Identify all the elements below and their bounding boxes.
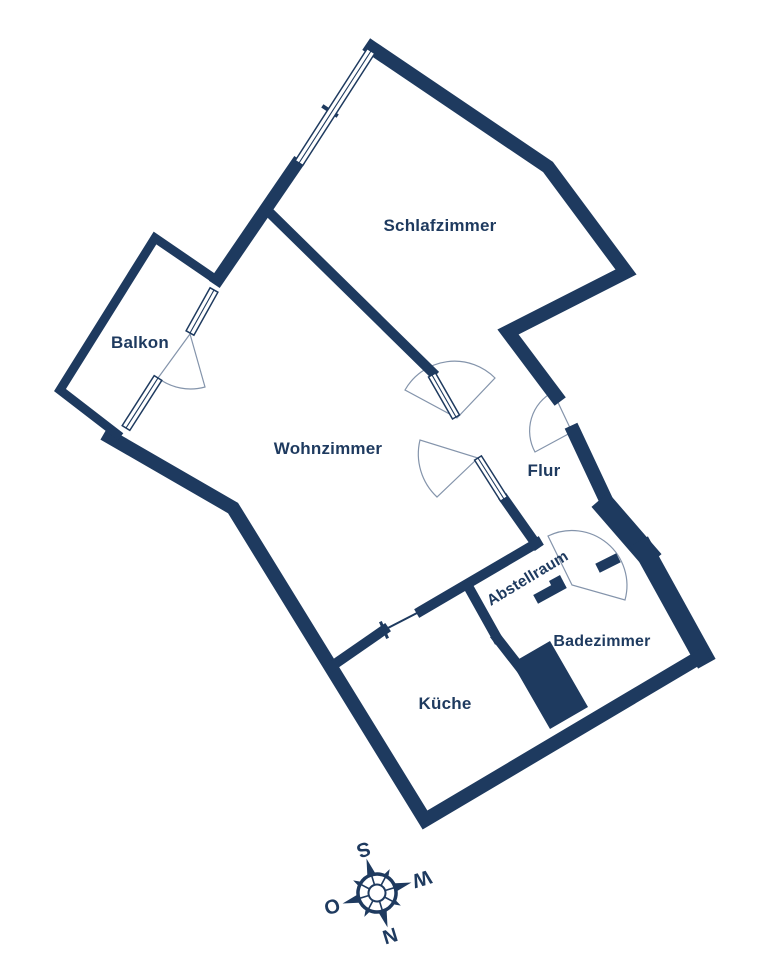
room-label-badezimmer: Badezimmer <box>553 633 650 651</box>
wall-storage-bath-right <box>602 560 614 566</box>
floor-plan-page: N O S W Schlafzimmer Balkon Wohnzimmer F… <box>0 0 768 953</box>
bedroom-window-midline <box>299 51 371 163</box>
walls <box>60 48 702 820</box>
balcony-window-upper-midline <box>190 290 214 333</box>
balcony-window-lower-midline <box>126 378 158 428</box>
compass-spokes <box>353 869 400 916</box>
wall-bedroom-living <box>271 214 432 372</box>
room-label-wohnzimmer: Wohnzimmer <box>274 439 382 459</box>
compass-letters: N O S W <box>308 822 447 953</box>
floor-plan-drawing: N O S W <box>0 0 768 953</box>
wall-right-lower <box>644 550 702 655</box>
compass-rose: N O S W <box>308 822 447 953</box>
wall-bottom-left-outline <box>110 437 700 820</box>
wall-living-hall-stub <box>505 500 536 544</box>
compass-letter-south: S <box>354 837 373 862</box>
entry-door-arc <box>530 392 572 452</box>
room-label-kueche: Küche <box>419 694 472 714</box>
wall-kitchen-top-left <box>332 630 384 666</box>
compass-letter-north: N <box>380 922 400 947</box>
compass-letter-west: W <box>409 865 434 892</box>
glass-panel-lower-midline <box>478 458 504 499</box>
room-label-flur: Flur <box>528 461 561 481</box>
windows <box>122 49 507 502</box>
compass-outer-ring <box>353 869 400 916</box>
room-label-balkon: Balkon <box>111 333 169 353</box>
kitchen-threshold-line <box>384 611 421 630</box>
room-label-schlafzimmer: Schlafzimmer <box>384 216 497 236</box>
compass-inner-ring <box>366 882 387 903</box>
livingroom-hall-door-arc <box>418 440 478 497</box>
compass-points <box>332 848 422 938</box>
shaft-block <box>512 641 588 729</box>
compass-letter-east: O <box>321 893 342 919</box>
